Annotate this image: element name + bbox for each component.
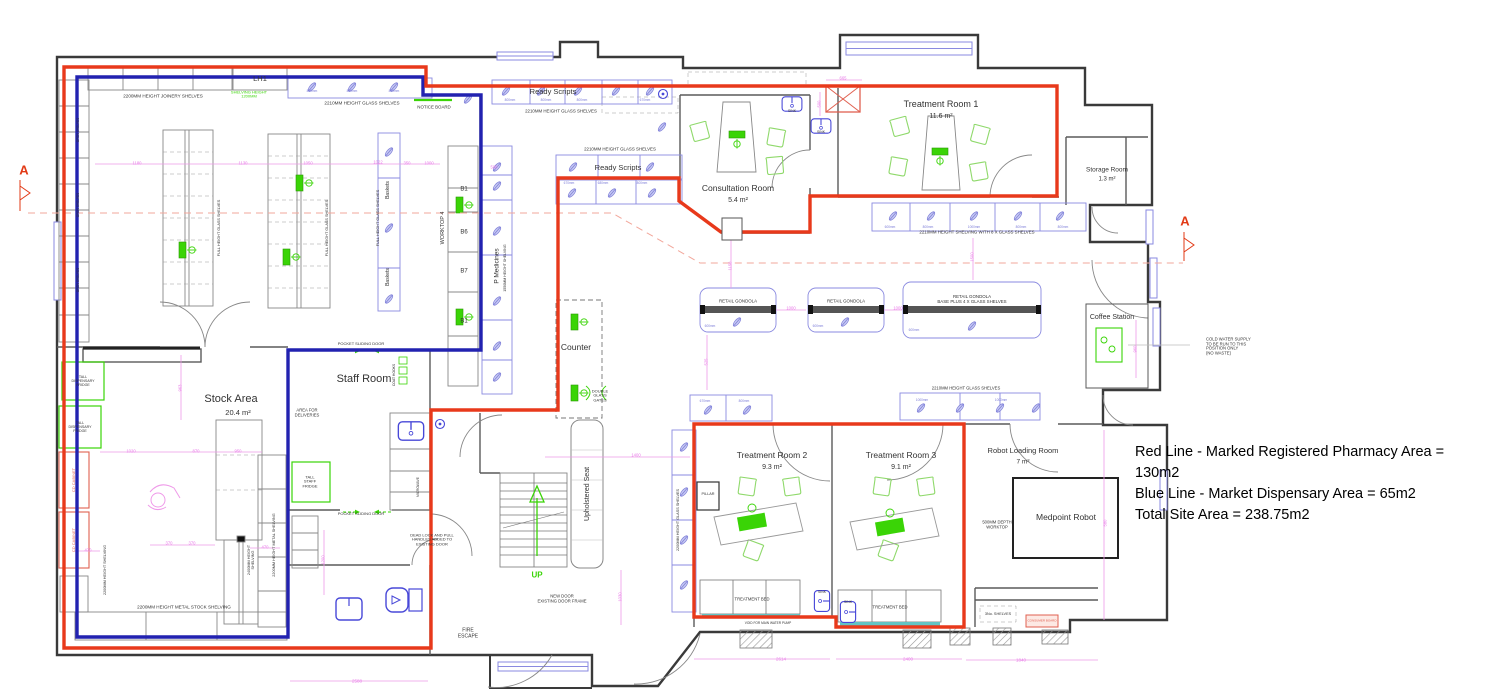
- legend-total-area: Total Site Area = 238.75m2: [1135, 505, 1485, 526]
- retail-gondolas: [700, 282, 1041, 338]
- consultation-post: [722, 218, 742, 240]
- staircase: [500, 473, 567, 567]
- glass-shelf-leaf-icons: [307, 82, 1065, 591]
- floor-plan-drawing: [0, 0, 1485, 699]
- outer-walls: [57, 35, 1167, 688]
- legend: Red Line - Marked Registered Pharmacy Ar…: [1135, 442, 1485, 526]
- floor-plan-canvas: Red Line - Marked Registered Pharmacy Ar…: [0, 0, 1485, 699]
- dimension-lines: [75, 80, 1136, 681]
- window-band: [54, 42, 1167, 671]
- section-line: [20, 180, 1194, 263]
- legend-red-line: Red Line - Marked Registered Pharmacy Ar…: [1135, 442, 1485, 484]
- furniture: [179, 102, 1190, 626]
- legend-blue-line: Blue Line - Market Dispensary Area = 65m…: [1135, 484, 1485, 505]
- blue-dispensary-line: [77, 77, 481, 637]
- interior-walls: [57, 88, 1148, 655]
